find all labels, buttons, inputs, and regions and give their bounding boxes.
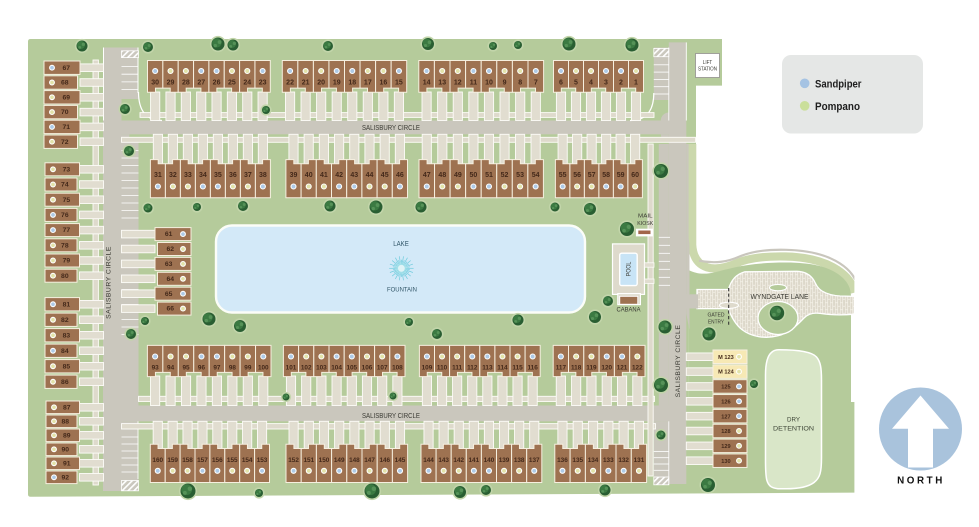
svg-text:M 123: M 123	[718, 355, 734, 361]
svg-text:77: 77	[63, 227, 71, 234]
svg-text:9: 9	[503, 80, 507, 87]
svg-text:91: 91	[63, 460, 71, 467]
svg-text:86: 86	[61, 379, 69, 386]
svg-text:65: 65	[165, 291, 173, 298]
svg-text:143: 143	[438, 457, 449, 464]
svg-text:69: 69	[63, 94, 71, 101]
svg-text:76: 76	[61, 212, 69, 219]
svg-text:128: 128	[721, 429, 730, 435]
svg-text:81: 81	[63, 301, 71, 308]
svg-text:88: 88	[61, 418, 69, 425]
svg-text:29: 29	[167, 80, 175, 87]
svg-text:33: 33	[184, 172, 192, 179]
svg-text:130: 130	[721, 459, 730, 465]
svg-text:11: 11	[470, 80, 478, 87]
svg-text:83: 83	[63, 332, 71, 339]
svg-text:4: 4	[589, 80, 593, 87]
svg-text:27: 27	[197, 80, 205, 87]
svg-text:93: 93	[152, 365, 160, 372]
svg-text:26: 26	[213, 80, 221, 87]
svg-text:142: 142	[453, 457, 464, 464]
svg-text:66: 66	[166, 306, 174, 313]
svg-text:113: 113	[482, 365, 493, 372]
svg-text:141: 141	[469, 457, 480, 464]
svg-text:KIOSK: KIOSK	[637, 221, 653, 227]
svg-text:WYNDGATE LANE: WYNDGATE LANE	[751, 292, 809, 301]
svg-text:71: 71	[63, 124, 71, 131]
svg-text:Pompano: Pompano	[815, 101, 860, 113]
svg-text:6: 6	[559, 80, 563, 87]
svg-text:133: 133	[603, 457, 614, 464]
svg-text:149: 149	[334, 457, 345, 464]
svg-text:STATION: STATION	[698, 67, 717, 73]
svg-text:82: 82	[61, 317, 69, 324]
svg-text:132: 132	[618, 457, 629, 464]
svg-text:114: 114	[497, 365, 508, 372]
svg-text:36: 36	[229, 172, 237, 179]
svg-text:NORTH: NORTH	[897, 475, 945, 486]
svg-text:7: 7	[534, 80, 538, 87]
svg-text:FOUNTAIN: FOUNTAIN	[387, 287, 417, 293]
svg-text:45: 45	[381, 172, 389, 179]
svg-text:80: 80	[61, 273, 69, 280]
svg-text:154: 154	[242, 457, 253, 464]
svg-text:99: 99	[244, 365, 252, 372]
svg-text:160: 160	[152, 457, 163, 464]
svg-text:157: 157	[197, 457, 208, 464]
svg-text:146: 146	[379, 457, 390, 464]
svg-text:39: 39	[290, 172, 298, 179]
svg-text:122: 122	[632, 365, 643, 372]
svg-text:30: 30	[151, 80, 159, 87]
svg-text:52: 52	[501, 172, 509, 179]
svg-text:24: 24	[243, 80, 251, 87]
svg-text:17: 17	[364, 80, 372, 87]
svg-text:18: 18	[348, 80, 356, 87]
svg-text:DRY: DRY	[787, 417, 800, 424]
svg-text:59: 59	[617, 172, 625, 179]
svg-text:20: 20	[317, 80, 325, 87]
svg-text:Sandpiper: Sandpiper	[815, 78, 862, 90]
svg-text:10: 10	[485, 80, 493, 87]
svg-text:25: 25	[228, 80, 236, 87]
svg-text:134: 134	[588, 457, 599, 464]
svg-text:58: 58	[602, 172, 610, 179]
svg-text:96: 96	[198, 365, 206, 372]
svg-text:84: 84	[61, 348, 69, 355]
svg-text:56: 56	[573, 172, 581, 179]
svg-text:115: 115	[512, 365, 523, 372]
svg-text:21: 21	[302, 80, 310, 87]
svg-text:92: 92	[61, 474, 69, 481]
svg-text:12: 12	[454, 80, 462, 87]
svg-text:49: 49	[454, 172, 462, 179]
svg-text:109: 109	[422, 365, 433, 372]
svg-text:150: 150	[319, 457, 330, 464]
svg-text:119: 119	[586, 365, 597, 372]
svg-text:95: 95	[182, 365, 190, 372]
svg-text:79: 79	[63, 258, 71, 265]
svg-text:127: 127	[721, 414, 730, 420]
svg-text:SALISBURY CIRCLE: SALISBURY CIRCLE	[675, 325, 682, 398]
svg-text:78: 78	[61, 242, 69, 249]
svg-text:98: 98	[229, 365, 237, 372]
svg-text:53: 53	[516, 172, 524, 179]
svg-text:CABANA: CABANA	[617, 308, 641, 314]
svg-text:38: 38	[259, 172, 267, 179]
svg-text:POOL: POOL	[627, 261, 633, 276]
svg-text:89: 89	[63, 432, 71, 439]
svg-text:73: 73	[63, 166, 71, 173]
svg-text:60: 60	[631, 172, 639, 179]
svg-text:111: 111	[452, 365, 462, 372]
svg-text:155: 155	[227, 457, 238, 464]
svg-text:75: 75	[63, 197, 71, 204]
svg-text:100: 100	[258, 365, 269, 372]
svg-text:148: 148	[349, 457, 360, 464]
svg-text:51: 51	[485, 172, 493, 179]
svg-text:16: 16	[379, 80, 387, 87]
svg-text:103: 103	[316, 365, 327, 372]
svg-text:107: 107	[377, 365, 388, 372]
svg-text:ENTRY: ENTRY	[708, 320, 724, 326]
svg-text:136: 136	[557, 457, 568, 464]
svg-text:GATED: GATED	[708, 312, 725, 318]
svg-text:125: 125	[721, 385, 730, 391]
svg-text:147: 147	[364, 457, 375, 464]
svg-text:13: 13	[438, 80, 446, 87]
svg-text:32: 32	[169, 172, 177, 179]
svg-text:120: 120	[601, 365, 612, 372]
svg-text:31: 31	[154, 172, 162, 179]
svg-text:126: 126	[721, 399, 730, 405]
svg-text:135: 135	[572, 457, 583, 464]
svg-text:151: 151	[303, 457, 314, 464]
svg-text:131: 131	[634, 457, 645, 464]
svg-text:46: 46	[396, 172, 404, 179]
svg-text:87: 87	[63, 404, 71, 411]
svg-text:67: 67	[63, 65, 71, 72]
svg-text:90: 90	[61, 446, 69, 453]
svg-text:SALISBURY CIRCLE: SALISBURY CIRCLE	[362, 411, 420, 420]
svg-text:112: 112	[467, 365, 478, 372]
svg-text:138: 138	[514, 457, 525, 464]
svg-text:129: 129	[721, 444, 730, 450]
svg-text:41: 41	[320, 172, 328, 179]
svg-text:DETENTION: DETENTION	[773, 426, 814, 433]
svg-text:140: 140	[484, 457, 495, 464]
svg-text:40: 40	[305, 172, 313, 179]
svg-text:85: 85	[63, 363, 71, 370]
svg-text:62: 62	[166, 246, 174, 253]
svg-text:47: 47	[423, 172, 431, 179]
svg-text:LAKE: LAKE	[393, 239, 409, 248]
svg-text:139: 139	[499, 457, 510, 464]
svg-text:44: 44	[366, 172, 374, 179]
svg-text:116: 116	[527, 365, 538, 372]
svg-text:43: 43	[350, 172, 358, 179]
svg-text:72: 72	[61, 139, 69, 146]
svg-text:37: 37	[244, 172, 252, 179]
svg-text:34: 34	[199, 172, 207, 179]
svg-text:M 124: M 124	[718, 370, 734, 376]
svg-text:61: 61	[165, 231, 173, 238]
svg-text:153: 153	[257, 457, 268, 464]
svg-text:105: 105	[346, 365, 357, 372]
svg-text:3: 3	[604, 80, 608, 87]
svg-text:55: 55	[559, 172, 567, 179]
svg-text:19: 19	[333, 80, 341, 87]
svg-text:LIFT: LIFT	[703, 60, 713, 66]
svg-text:156: 156	[212, 457, 223, 464]
svg-text:15: 15	[395, 80, 403, 87]
svg-text:137: 137	[529, 457, 540, 464]
svg-text:121: 121	[617, 365, 628, 372]
svg-text:63: 63	[165, 261, 173, 268]
svg-text:104: 104	[331, 365, 342, 372]
svg-text:102: 102	[301, 365, 312, 372]
svg-text:70: 70	[61, 109, 69, 116]
svg-text:28: 28	[182, 80, 190, 87]
svg-text:22: 22	[286, 80, 294, 87]
svg-text:1: 1	[634, 80, 638, 87]
svg-text:108: 108	[392, 365, 403, 372]
svg-text:2: 2	[619, 80, 623, 87]
svg-text:145: 145	[395, 457, 406, 464]
svg-text:8: 8	[518, 80, 522, 87]
svg-text:118: 118	[571, 365, 582, 372]
svg-text:54: 54	[532, 172, 540, 179]
svg-text:74: 74	[61, 182, 69, 189]
svg-text:159: 159	[167, 457, 178, 464]
svg-text:64: 64	[166, 276, 174, 283]
svg-text:158: 158	[182, 457, 193, 464]
svg-text:152: 152	[288, 457, 299, 464]
svg-text:5: 5	[574, 80, 578, 87]
svg-text:23: 23	[259, 80, 267, 87]
svg-text:101: 101	[286, 365, 297, 372]
svg-text:144: 144	[423, 457, 434, 464]
svg-text:68: 68	[61, 80, 69, 87]
svg-text:14: 14	[423, 80, 431, 87]
svg-text:117: 117	[556, 365, 567, 372]
svg-text:110: 110	[437, 365, 448, 372]
svg-text:35: 35	[214, 172, 222, 179]
svg-text:97: 97	[213, 365, 221, 372]
svg-text:106: 106	[362, 365, 373, 372]
svg-text:57: 57	[588, 172, 596, 179]
svg-text:48: 48	[438, 172, 446, 179]
svg-text:94: 94	[167, 365, 175, 372]
svg-text:42: 42	[335, 172, 343, 179]
svg-text:SALISBURY CIRCLE: SALISBURY CIRCLE	[362, 123, 420, 132]
svg-text:MAIL: MAIL	[638, 214, 653, 220]
svg-text:SALISBURY CIRCLE: SALISBURY CIRCLE	[106, 246, 113, 319]
svg-text:50: 50	[470, 172, 478, 179]
